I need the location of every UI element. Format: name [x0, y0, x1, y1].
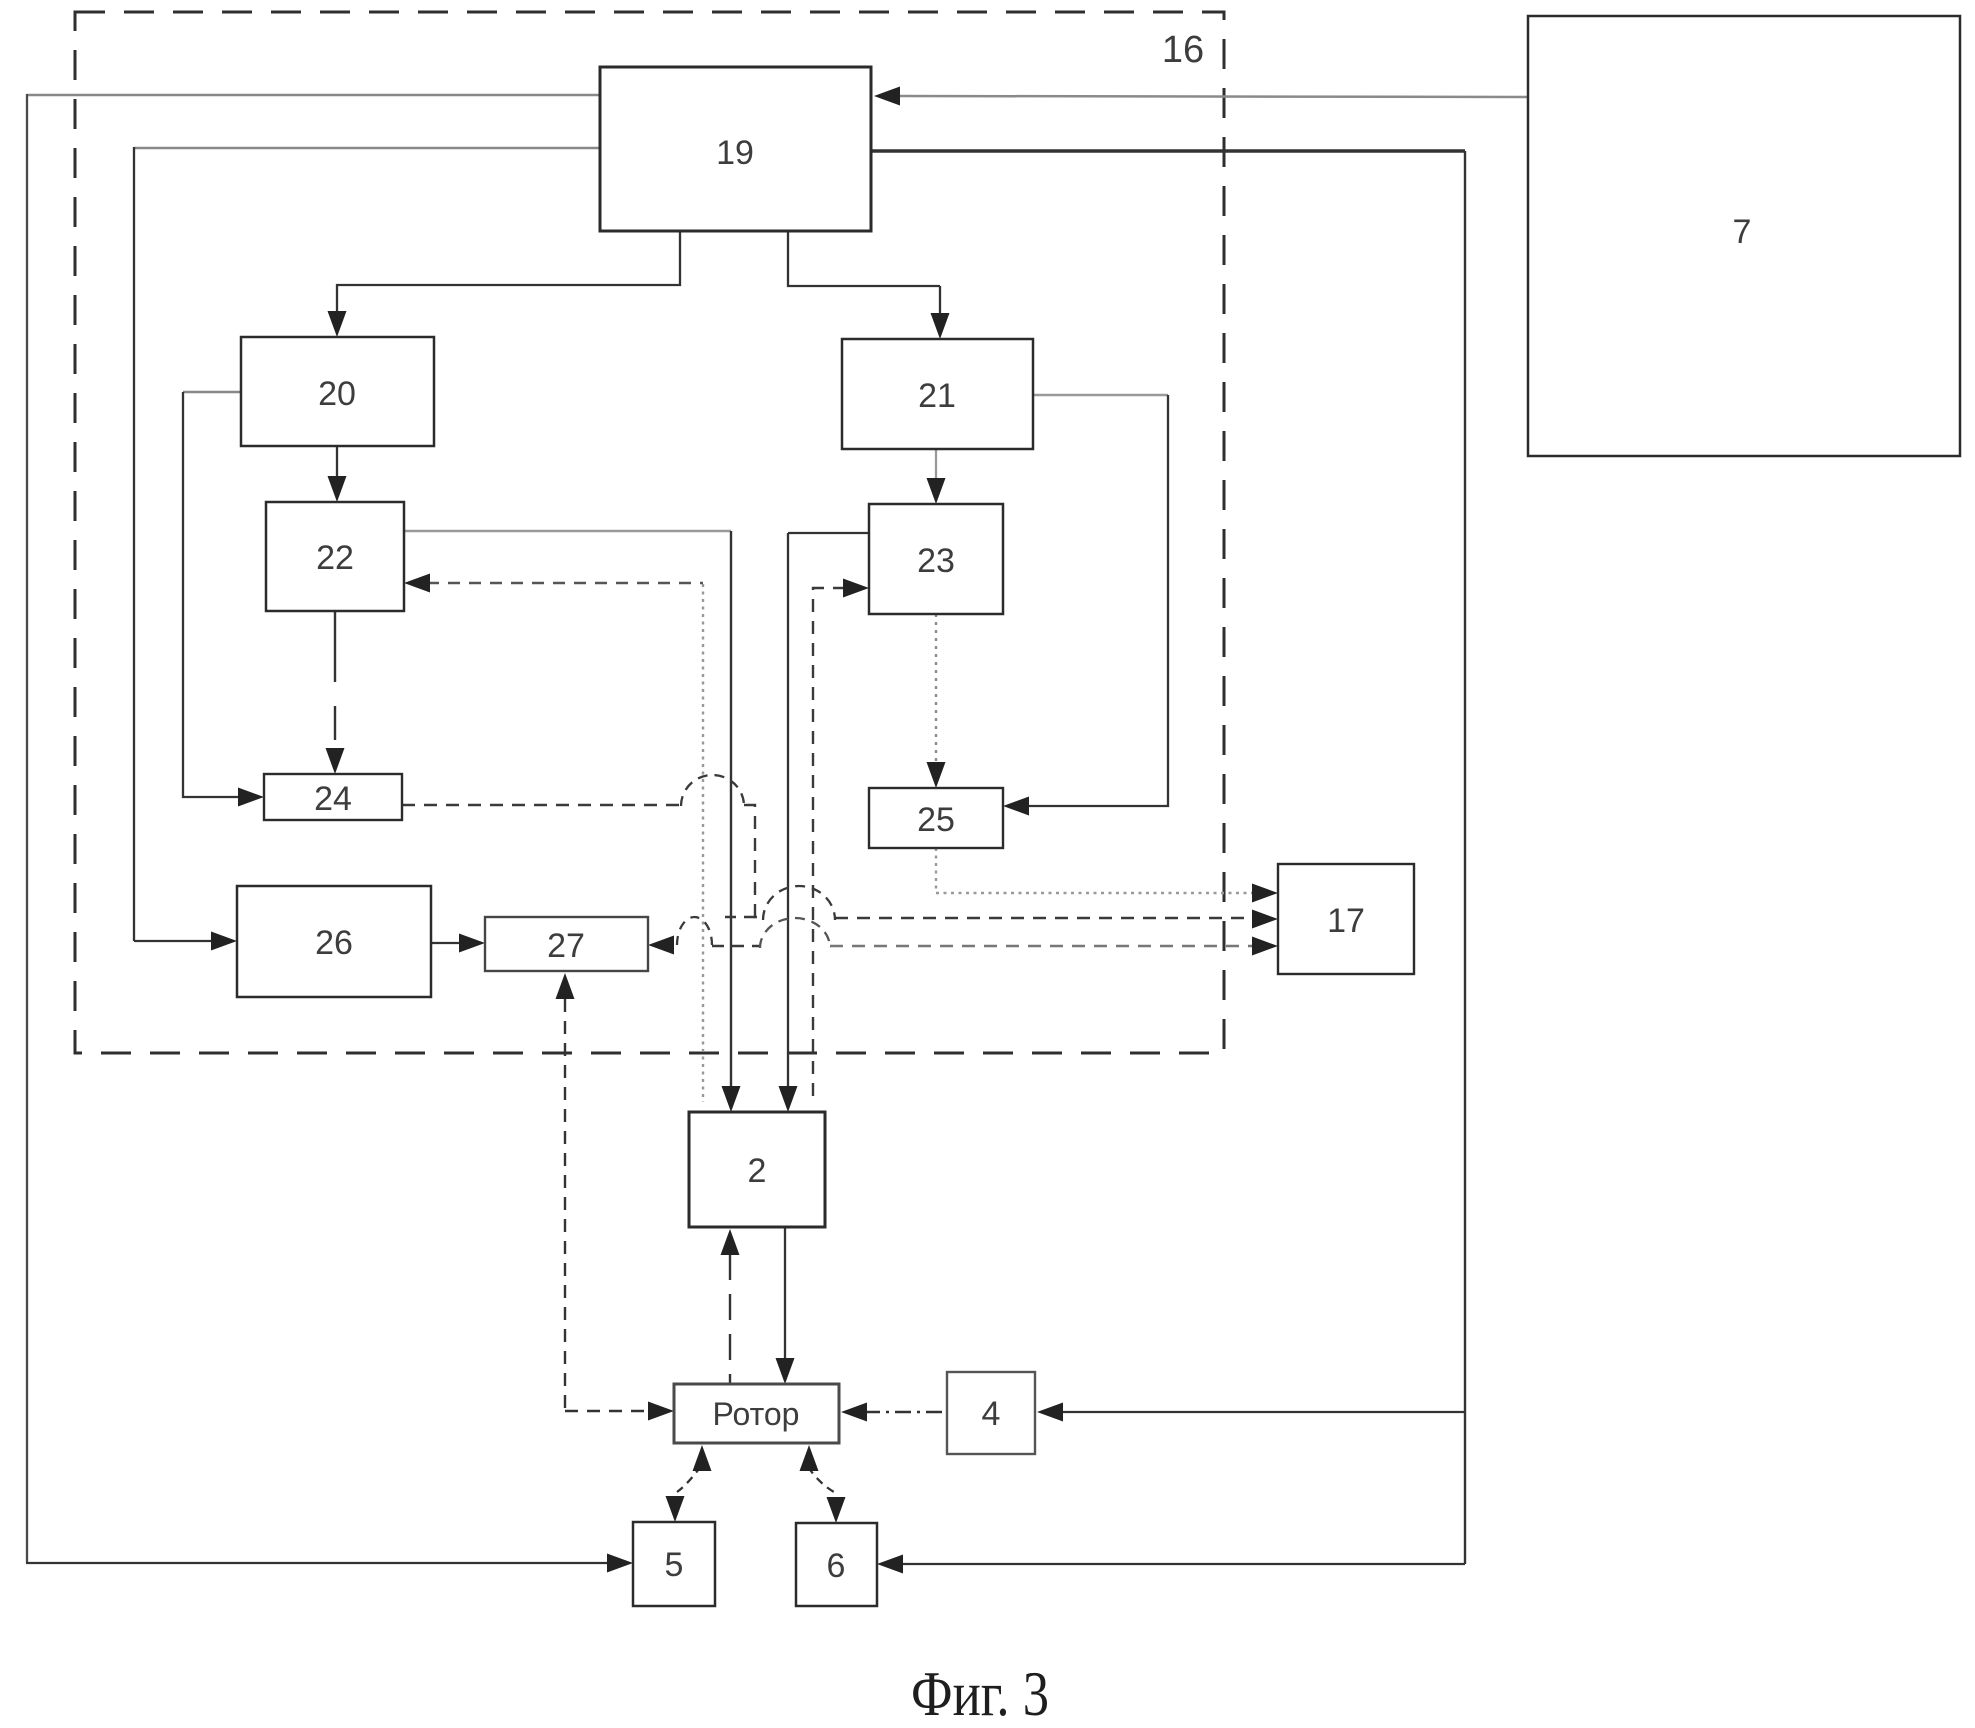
svg-text:24: 24: [314, 780, 352, 818]
svg-text:2: 2: [748, 1152, 767, 1190]
svg-text:16: 16: [1162, 29, 1204, 71]
svg-text:17: 17: [1327, 902, 1365, 940]
svg-text:Фиг. 3: Фиг. 3: [911, 1658, 1049, 1723]
svg-text:20: 20: [318, 375, 356, 413]
svg-text:22: 22: [316, 539, 354, 577]
svg-text:19: 19: [716, 134, 754, 172]
svg-text:4: 4: [982, 1395, 1001, 1433]
svg-text:Ротор: Ротор: [713, 1396, 800, 1432]
svg-text:26: 26: [315, 924, 353, 962]
svg-text:27: 27: [547, 927, 585, 965]
svg-text:25: 25: [917, 801, 955, 839]
svg-text:23: 23: [917, 542, 955, 580]
svg-text:5: 5: [665, 1546, 684, 1584]
svg-text:21: 21: [918, 377, 956, 415]
svg-text:7: 7: [1733, 213, 1752, 251]
svg-text:6: 6: [827, 1547, 846, 1585]
